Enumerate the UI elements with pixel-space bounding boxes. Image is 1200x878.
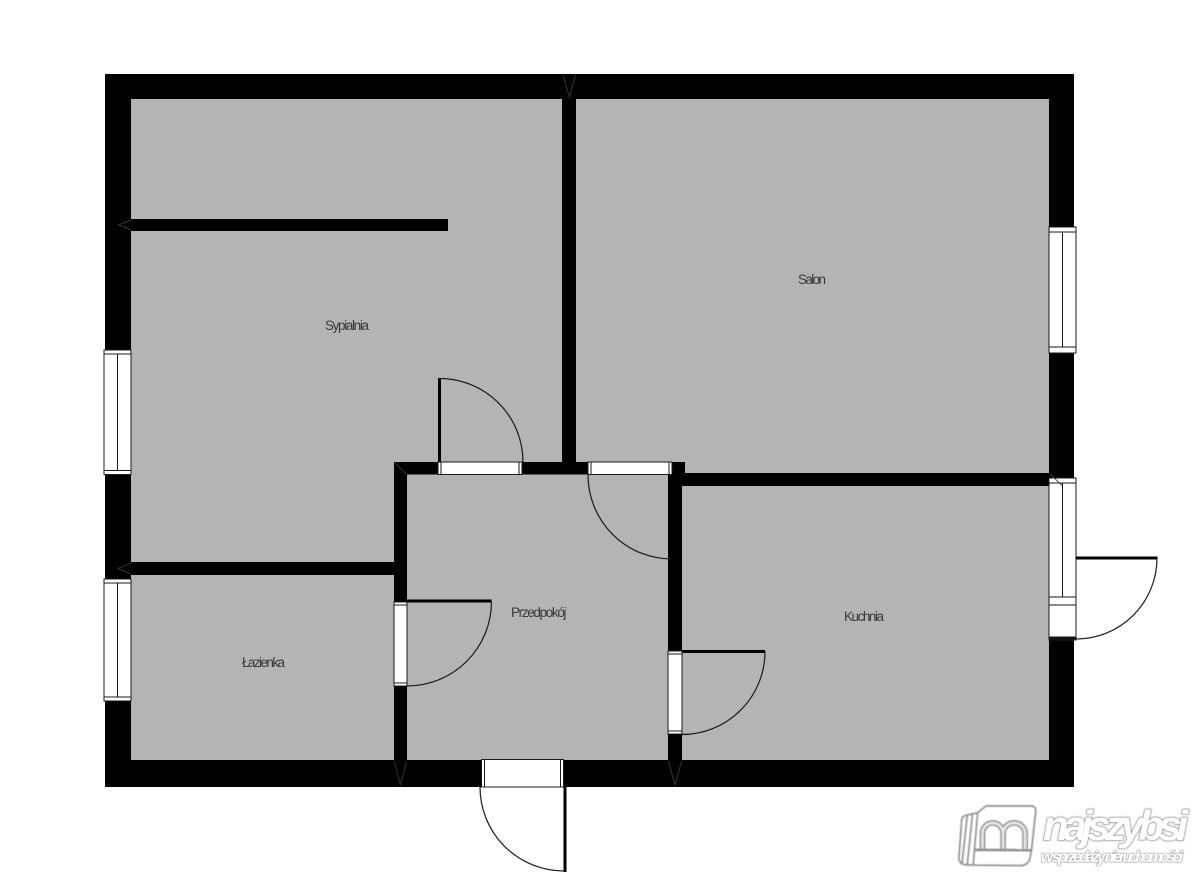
svg-text:w sprzedaży nieruchomości: w sprzedaży nieruchomości: [1041, 849, 1184, 866]
svg-text:Kuchnia: Kuchnia: [844, 609, 884, 624]
svg-text:Łazienka: Łazienka: [242, 655, 285, 670]
svg-text:najszybsi: najszybsi: [1043, 802, 1189, 849]
svg-text:Sypialnia: Sypialnia: [325, 318, 369, 333]
svg-text:Salon: Salon: [798, 272, 826, 287]
svg-text:Przedpokój: Przedpokój: [511, 605, 567, 620]
